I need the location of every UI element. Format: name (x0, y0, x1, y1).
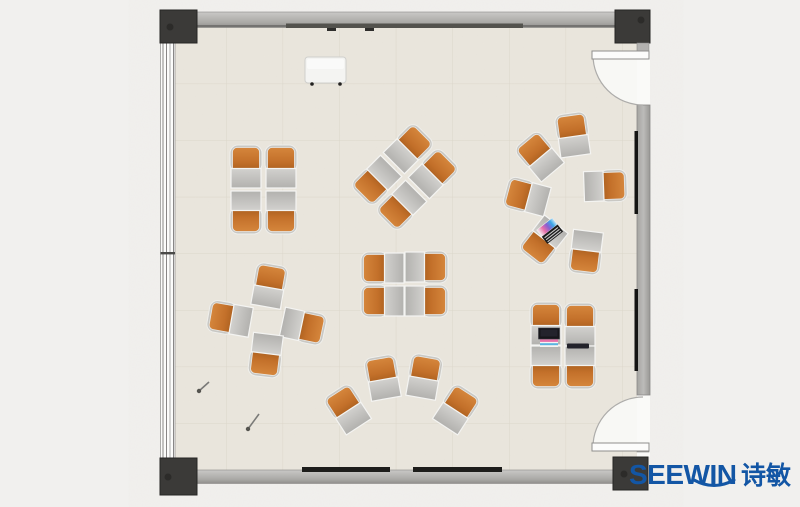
marker-tray-item (365, 28, 374, 31)
door-leaf-bottom (592, 443, 649, 451)
wall-bottom (197, 470, 613, 484)
brand-logo: SEEWIN 诗敏 (629, 459, 791, 490)
podium-whiteboard (305, 57, 346, 86)
window-wall-left (161, 43, 176, 458)
column-top-right (615, 10, 650, 43)
right-wall-screen-top (635, 131, 639, 214)
desk-chair-unit (405, 251, 448, 283)
desk-chair-unit (583, 169, 627, 202)
marker-tray-item (327, 28, 336, 31)
front-whiteboard (286, 24, 523, 29)
room-floor (175, 27, 637, 470)
right-wall-screen-bottom (635, 289, 639, 371)
door-leaf-top (592, 51, 649, 59)
desk-chair-unit (361, 285, 404, 317)
back-wall-board-left (302, 467, 390, 472)
laptop-flat (539, 328, 560, 347)
column-top-left (160, 10, 197, 43)
desk-chair-unit (564, 303, 596, 346)
floor-plan-canvas: SEEWIN 诗敏 (0, 0, 800, 507)
desk-chair-unit (405, 285, 448, 317)
podium-foot (338, 82, 342, 86)
desk-chair-unit (247, 332, 284, 379)
desk-chair-unit (230, 145, 262, 188)
desk-chair-unit (265, 145, 297, 188)
desk-chair-unit (361, 252, 404, 284)
desk-chair-unit (564, 346, 596, 389)
desk-chair-unit (554, 111, 592, 158)
tablet (567, 344, 589, 349)
desk-chair-unit (265, 191, 297, 234)
wall-right (637, 105, 650, 395)
floor-plan-drawing: SEEWIN 诗敏 (0, 0, 800, 507)
podium-foot (310, 82, 314, 86)
desk-chair-unit (567, 229, 604, 276)
desk-chair-unit (230, 191, 262, 234)
back-wall-board-right (413, 467, 502, 472)
window-mullion-joint (161, 252, 176, 254)
logo-chinese: 诗敏 (741, 461, 791, 490)
desk-chair-unit (530, 346, 562, 389)
